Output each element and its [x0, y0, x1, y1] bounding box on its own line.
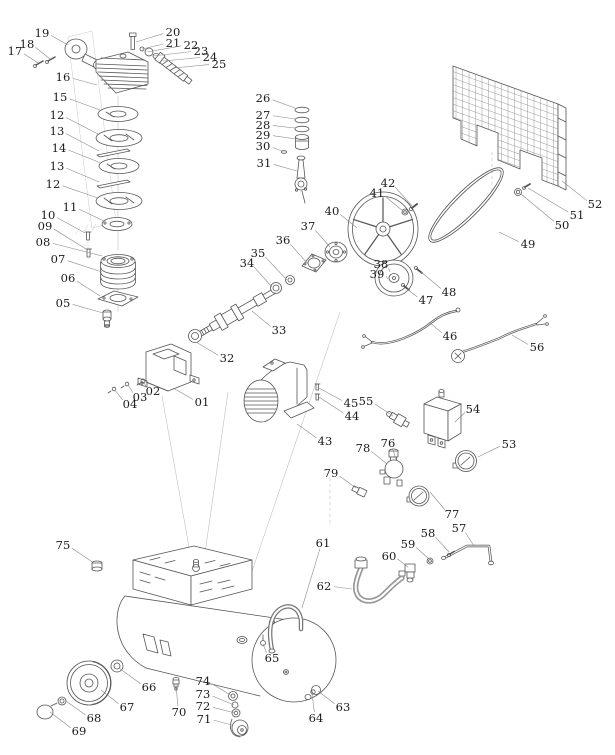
electric-motor — [244, 359, 320, 422]
leader-line — [142, 44, 163, 49]
part-number: 15 — [53, 90, 68, 104]
part-callout-05-4: 05 — [56, 296, 103, 313]
part-callout-55-56: 55 — [359, 394, 393, 416]
bearing — [189, 330, 202, 343]
leader-line — [66, 134, 99, 151]
flywheel — [348, 192, 418, 266]
part-number: 70 — [172, 705, 187, 719]
part-number: 25 — [212, 57, 227, 71]
breather-plug — [103, 310, 111, 327]
part-callout-37-38: 37 — [301, 219, 330, 247]
leader-line — [429, 322, 442, 333]
part-number: 63 — [336, 700, 351, 714]
leader-line — [521, 194, 554, 221]
part-callout-15-16: 15 — [53, 90, 100, 110]
part-callout-31-32: 31 — [257, 156, 297, 171]
part-number: 31 — [257, 156, 272, 170]
leader-line — [54, 229, 86, 249]
part-number: 26 — [256, 91, 271, 105]
wheel-assembly — [37, 660, 123, 719]
leader-line — [70, 99, 100, 110]
caster-assembly — [229, 692, 249, 738]
part-number: 79 — [324, 466, 339, 480]
part-number: 48 — [442, 285, 457, 299]
part-number: 13 — [50, 159, 65, 173]
leader-line — [375, 404, 393, 416]
part-number: 19 — [35, 26, 50, 40]
part-number: 78 — [356, 441, 371, 455]
leader-line — [499, 232, 519, 242]
part-number: 11 — [63, 200, 78, 214]
leader-line — [35, 47, 50, 59]
leader-line — [174, 65, 209, 68]
part-number: 42 — [381, 176, 396, 190]
leader-line — [273, 148, 282, 151]
part-callout-32-33: 32 — [196, 342, 234, 365]
part-number: 68 — [87, 711, 102, 725]
part-number: 62 — [317, 579, 332, 593]
pressure-switch — [424, 390, 461, 449]
part-number: 14 — [52, 141, 67, 155]
part-number: 35 — [251, 246, 266, 260]
part-number: 67 — [120, 700, 135, 714]
part-number: 30 — [256, 139, 271, 153]
pressure-gauge-77 — [407, 486, 429, 506]
leader-line — [421, 272, 441, 289]
part-number: 55 — [359, 394, 374, 408]
part-number: 01 — [195, 395, 210, 409]
part-callout-51-52: 51 — [528, 188, 584, 222]
part-number: 37 — [301, 219, 316, 233]
part-number: 39 — [370, 267, 385, 281]
part-number: 05 — [56, 296, 71, 310]
part-number: 72 — [196, 699, 211, 713]
part-callout-61-62: 61 — [302, 536, 330, 608]
leader-line — [340, 476, 356, 488]
part-number: 04 — [123, 397, 138, 411]
part-number: 60 — [382, 549, 397, 563]
safety-valve — [384, 408, 410, 429]
part-number: 36 — [276, 233, 291, 247]
leader-line — [562, 181, 587, 201]
part-number: 49 — [521, 237, 536, 251]
leader-line — [213, 707, 235, 713]
leader-line — [252, 311, 271, 327]
leader-line — [57, 218, 85, 233]
part-number: 54 — [466, 402, 481, 416]
part-number: 46 — [443, 329, 458, 343]
regulator — [380, 449, 403, 486]
part-number: 12 — [46, 177, 61, 191]
part-number: 52 — [588, 197, 603, 211]
part-number: 08 — [36, 235, 51, 249]
leader-line — [315, 230, 330, 247]
part-callout-67-68: 67 — [101, 690, 134, 714]
part-callout-35-36: 35 — [251, 246, 287, 280]
part-callout-49-50: 49 — [499, 232, 535, 251]
belt-guard — [450, 60, 566, 217]
valve-plate-stack — [96, 107, 142, 231]
part-callout-36-37: 36 — [276, 233, 309, 265]
part-callout-30-31: 30 — [256, 139, 282, 153]
part-number: 44 — [345, 409, 360, 423]
leader-line — [416, 547, 429, 559]
part-number: 59 — [401, 537, 416, 551]
part-number: 50 — [555, 218, 570, 232]
part-number: 65 — [265, 651, 280, 665]
discharge-tube — [155, 52, 194, 85]
shaft-seal-and-nut — [271, 276, 295, 294]
leader-line — [407, 289, 417, 297]
leader-line — [153, 52, 191, 56]
part-callout-71-72: 71 — [197, 712, 232, 726]
part-number: 16 — [56, 70, 71, 84]
part-callout-45-46: 45 — [319, 388, 358, 410]
leader-line — [254, 267, 272, 287]
part-callout-34-35: 34 — [240, 256, 272, 287]
cylinder — [101, 255, 136, 290]
leader-line — [273, 116, 295, 119]
leader-line — [528, 188, 568, 212]
part-number: 06 — [61, 271, 76, 285]
part-number: 76 — [381, 436, 396, 450]
part-number: 18 — [20, 37, 35, 51]
drive-belt — [421, 160, 512, 251]
part-number: 47 — [419, 293, 434, 307]
part-number: 12 — [50, 108, 65, 122]
part-callout-79-80: 79 — [324, 466, 356, 488]
part-number: 75 — [56, 538, 71, 552]
part-number: 77 — [445, 507, 460, 521]
leader-line — [265, 257, 287, 280]
part-callout-77-78: 77 — [430, 492, 459, 521]
leader-line — [371, 451, 387, 464]
leader-line — [334, 587, 352, 589]
diagram-page: 0102030405060708091011121314131215161718… — [0, 0, 615, 755]
leader-line — [430, 492, 445, 510]
leader-line — [173, 388, 193, 399]
part-number: 56 — [530, 340, 545, 354]
exploded-view-diagram: 0102030405060708091011121314131215161718… — [0, 0, 615, 755]
drain-hose — [355, 557, 402, 601]
leader-line — [73, 304, 103, 313]
crankshaft — [196, 284, 278, 341]
pipe-nipple — [351, 485, 367, 497]
part-callout-24-25: 24 — [163, 50, 217, 64]
leader-line — [274, 164, 297, 171]
part-callout-06-5: 06 — [61, 271, 100, 296]
part-callout-60-61: 60 — [382, 549, 408, 567]
leader-line — [214, 720, 232, 725]
part-callout-62-63: 62 — [317, 579, 352, 593]
leader-line — [435, 537, 449, 552]
part-callout-19-20: 19 — [35, 26, 68, 45]
part-number: 07 — [51, 252, 66, 266]
part-callout-53-54: 53 — [478, 437, 516, 457]
part-number: 71 — [197, 712, 212, 726]
part-callout-16-17: 16 — [56, 70, 97, 85]
power-cord — [452, 315, 549, 363]
leader-line — [63, 186, 98, 198]
leader-line — [465, 533, 474, 546]
part-callout-72-73: 72 — [196, 699, 235, 713]
leader-line — [68, 150, 101, 163]
leader-line — [273, 100, 295, 108]
leader-line — [73, 78, 97, 85]
part-callout-43-44: 43 — [297, 424, 332, 448]
part-callout-66-67: 66 — [119, 668, 156, 694]
part-callout-75-76: 75 — [56, 538, 94, 563]
leader-line — [66, 168, 99, 182]
cylinder-head — [96, 52, 148, 93]
tank-platform — [133, 546, 252, 605]
piston-assembly — [282, 107, 310, 203]
leader-line — [512, 335, 528, 344]
leader-line — [72, 548, 94, 563]
part-number: 33 — [272, 323, 287, 337]
leader-line — [51, 36, 68, 45]
part-callout-01-0: 01 — [173, 388, 209, 409]
leader-line — [136, 34, 163, 42]
leader-line — [478, 446, 500, 457]
part-callout-26-27: 26 — [256, 91, 295, 108]
part-number: 51 — [570, 208, 585, 222]
part-callout-12-15: 12 — [46, 177, 98, 198]
leader-line — [119, 668, 141, 684]
part-number: 21 — [166, 36, 181, 50]
outlet-pipe — [399, 546, 494, 582]
part-number: 74 — [196, 674, 211, 688]
part-number: 61 — [316, 536, 331, 550]
part-callout-57-58: 57 — [452, 521, 474, 546]
leader-line — [24, 54, 38, 63]
part-number: 53 — [502, 437, 517, 451]
leader-line — [196, 342, 218, 355]
pressure-gauge-53 — [453, 451, 477, 472]
part-number: 13 — [50, 124, 65, 138]
leader-line — [273, 136, 296, 139]
cylinder-gasket — [98, 291, 138, 306]
leader-line — [115, 390, 123, 400]
part-callout-69-70: 69 — [50, 712, 86, 738]
part-callout-52-53: 52 — [562, 181, 602, 211]
part-callout-56-57: 56 — [512, 335, 544, 354]
part-number: 45 — [344, 396, 359, 410]
leader-line — [77, 281, 100, 296]
part-number: 64 — [309, 711, 324, 725]
leader-line — [290, 244, 309, 265]
part-number: 69 — [72, 724, 87, 738]
leader-line — [50, 712, 71, 728]
leader-line — [297, 424, 316, 438]
part-callout-46-47: 46 — [429, 322, 457, 343]
part-number: 40 — [325, 204, 340, 218]
leader-line — [212, 684, 232, 696]
leader-line — [273, 126, 295, 128]
leader-line — [318, 691, 335, 704]
part-number: 58 — [421, 526, 436, 540]
part-callout-18-19: 18 — [20, 37, 50, 59]
guide-lines — [88, 52, 492, 583]
part-number: 02 — [146, 384, 161, 398]
part-number: 10 — [41, 208, 56, 222]
part-callout-59-60: 59 — [401, 537, 429, 559]
leader-line — [163, 58, 200, 61]
bearing-plate-gasket — [302, 254, 326, 272]
part-callout-33-34: 33 — [252, 311, 286, 337]
leader-line — [66, 118, 98, 134]
part-callout-07-6: 07 — [51, 252, 102, 272]
part-callout-58-59: 58 — [421, 526, 449, 552]
leader-line — [319, 388, 342, 400]
part-number: 32 — [220, 351, 235, 365]
tank-plug — [305, 695, 311, 700]
part-number: 73 — [196, 687, 211, 701]
leader-line — [398, 559, 408, 567]
part-callout-50-51: 50 — [521, 194, 569, 232]
part-callout-47-48: 47 — [407, 289, 433, 307]
part-number: 57 — [452, 521, 467, 535]
leader-line — [79, 209, 104, 221]
part-number: 66 — [142, 680, 157, 694]
part-number: 43 — [318, 434, 333, 448]
part-callout-70-71: 70 — [172, 685, 187, 719]
